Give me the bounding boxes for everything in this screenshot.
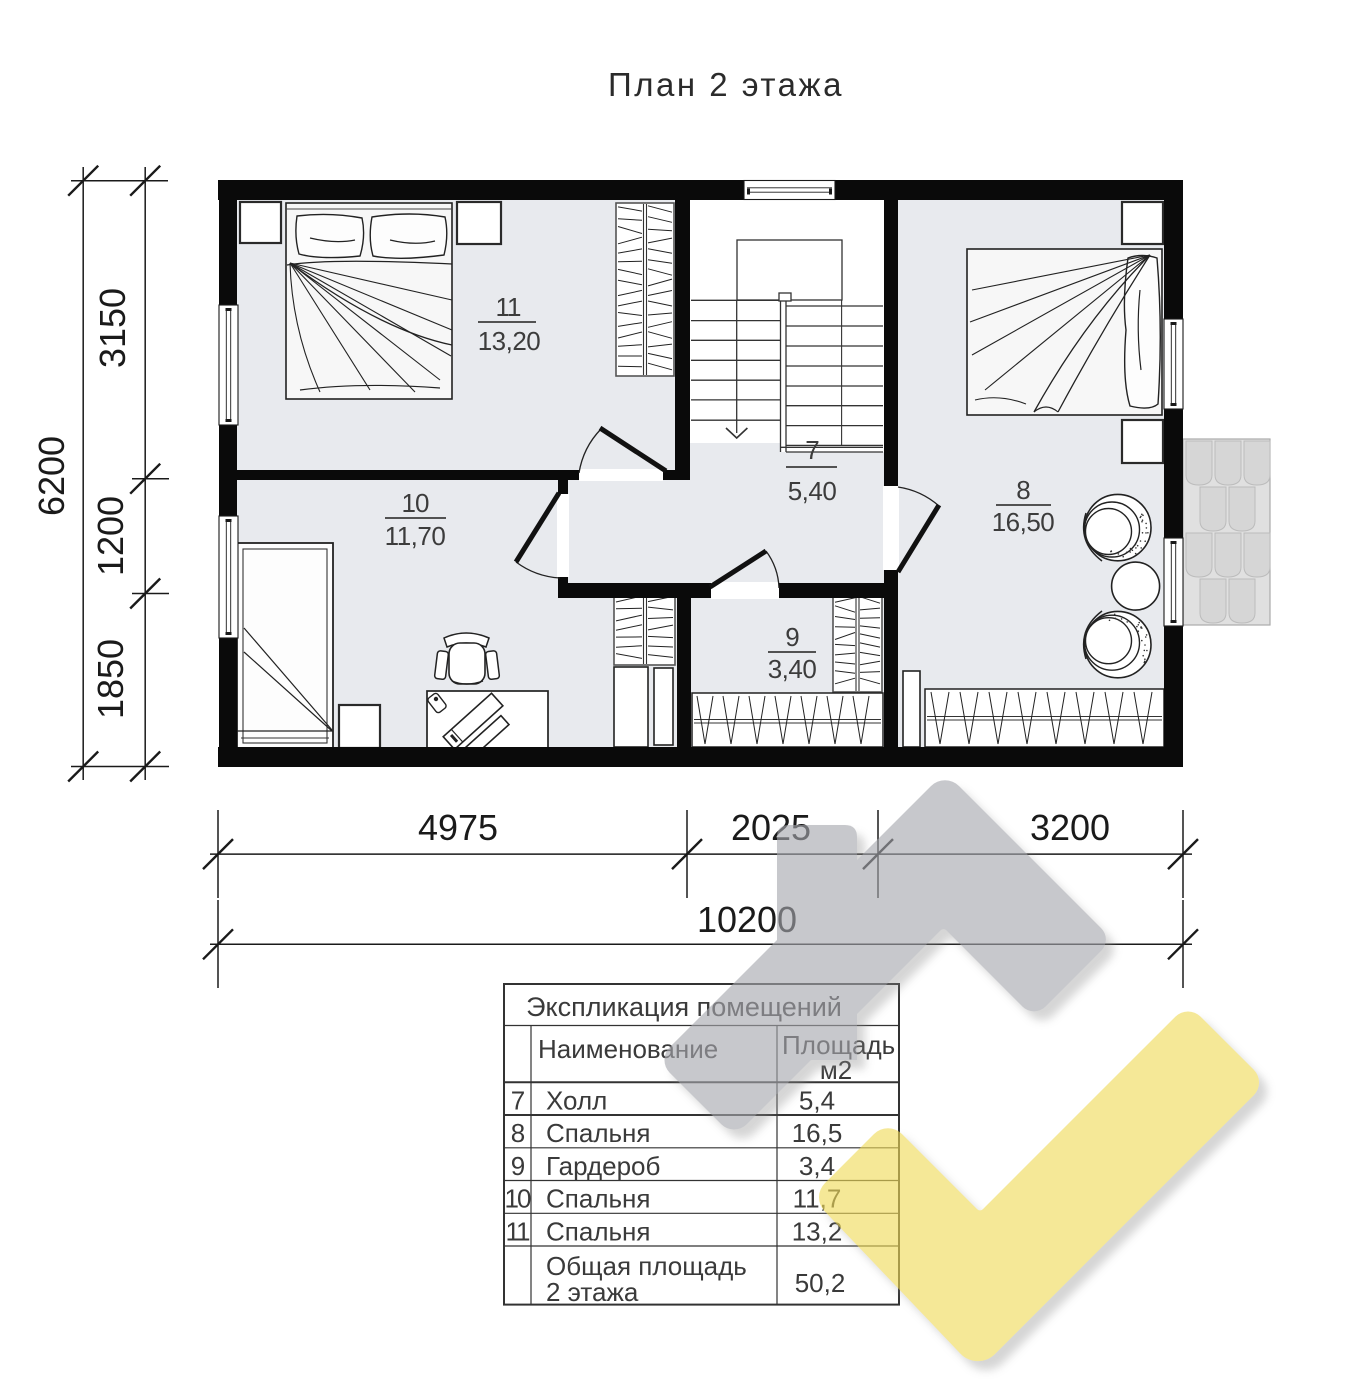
svg-text:11: 11 xyxy=(506,1216,531,1246)
svg-text:7: 7 xyxy=(805,435,819,465)
svg-text:8: 8 xyxy=(1016,475,1030,505)
svg-text:3,4: 3,4 xyxy=(799,1151,835,1181)
svg-text:10: 10 xyxy=(402,488,429,518)
svg-text:50,2: 50,2 xyxy=(795,1268,846,1298)
svg-text:3,40: 3,40 xyxy=(768,654,817,684)
svg-text:3200: 3200 xyxy=(1030,807,1110,848)
svg-text:5,4: 5,4 xyxy=(799,1086,835,1116)
svg-text:1200: 1200 xyxy=(90,496,131,576)
svg-text:3150: 3150 xyxy=(92,288,133,368)
svg-text:13,20: 13,20 xyxy=(478,326,541,356)
svg-text:9: 9 xyxy=(785,622,799,652)
svg-text:Холл: Холл xyxy=(546,1086,607,1116)
svg-text:16,5: 16,5 xyxy=(792,1118,843,1148)
svg-text:5,40: 5,40 xyxy=(788,476,837,506)
svg-text:Спальня: Спальня xyxy=(546,1184,650,1214)
svg-text:16,50: 16,50 xyxy=(992,507,1055,537)
svg-text:10: 10 xyxy=(505,1184,531,1214)
svg-text:1850: 1850 xyxy=(90,639,131,719)
svg-text:2 этажа: 2 этажа xyxy=(546,1277,639,1307)
svg-text:8: 8 xyxy=(511,1118,525,1148)
svg-text:Гардероб: Гардероб xyxy=(546,1151,660,1181)
svg-text:Спальня: Спальня xyxy=(546,1216,650,1246)
svg-text:11,70: 11,70 xyxy=(385,521,446,551)
svg-text:4975: 4975 xyxy=(418,807,498,848)
svg-text:6200: 6200 xyxy=(31,436,72,516)
svg-text:9: 9 xyxy=(511,1151,525,1181)
svg-text:Спальня: Спальня xyxy=(546,1118,650,1148)
svg-text:План 2 этажа: План 2 этажа xyxy=(608,66,844,103)
svg-text:11: 11 xyxy=(496,292,522,322)
svg-text:7: 7 xyxy=(511,1086,525,1116)
